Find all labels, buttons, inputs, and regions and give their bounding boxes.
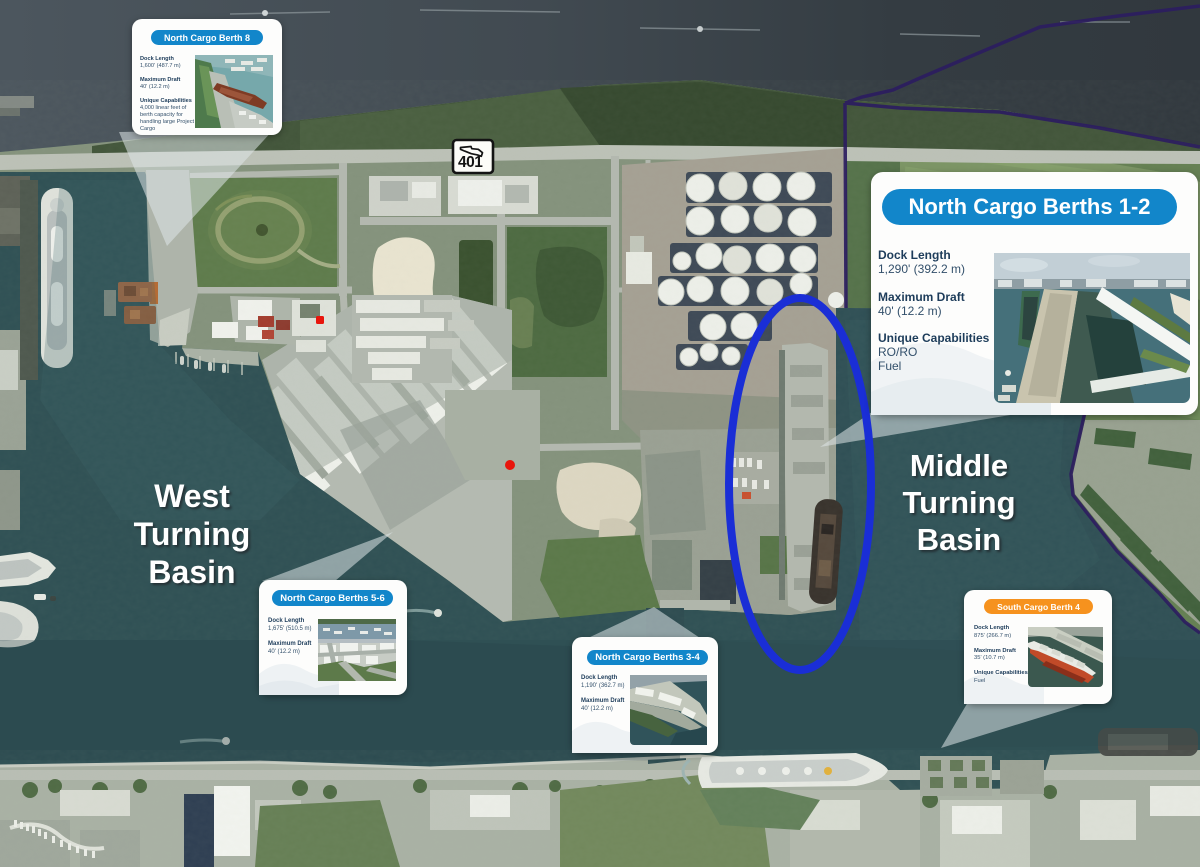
svg-text:401: 401 [458, 154, 483, 171]
